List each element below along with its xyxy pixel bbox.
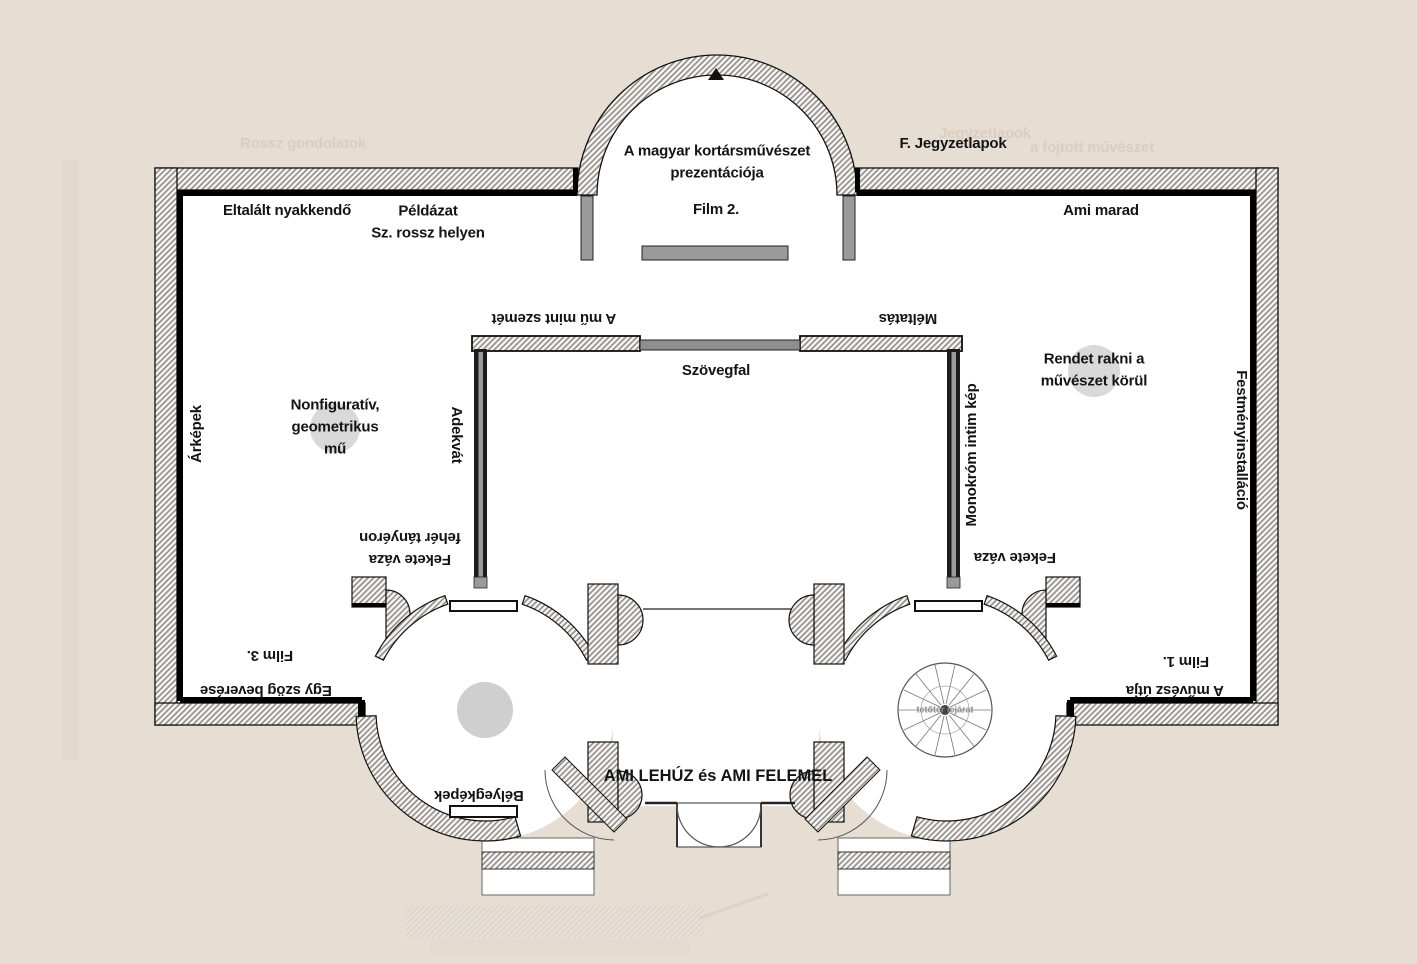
text-wall-screen <box>640 340 800 350</box>
spiral-staircase <box>898 663 992 757</box>
apse-jamb-right <box>843 196 855 260</box>
entrance-recess <box>677 803 761 847</box>
floor-plan-drawing <box>0 0 1417 964</box>
corridor-floor <box>613 598 819 806</box>
apse-jamb-left <box>581 196 593 260</box>
stair-band-left <box>482 852 594 869</box>
exhibition-floor-plan: Rossz gondolatok Jegyzetlapok a fojtott … <box>0 0 1417 964</box>
apse-bench <box>642 246 788 260</box>
apse-floor <box>589 67 845 195</box>
rotunda-left-pedestal <box>457 682 513 738</box>
stair-band-right <box>838 852 950 869</box>
